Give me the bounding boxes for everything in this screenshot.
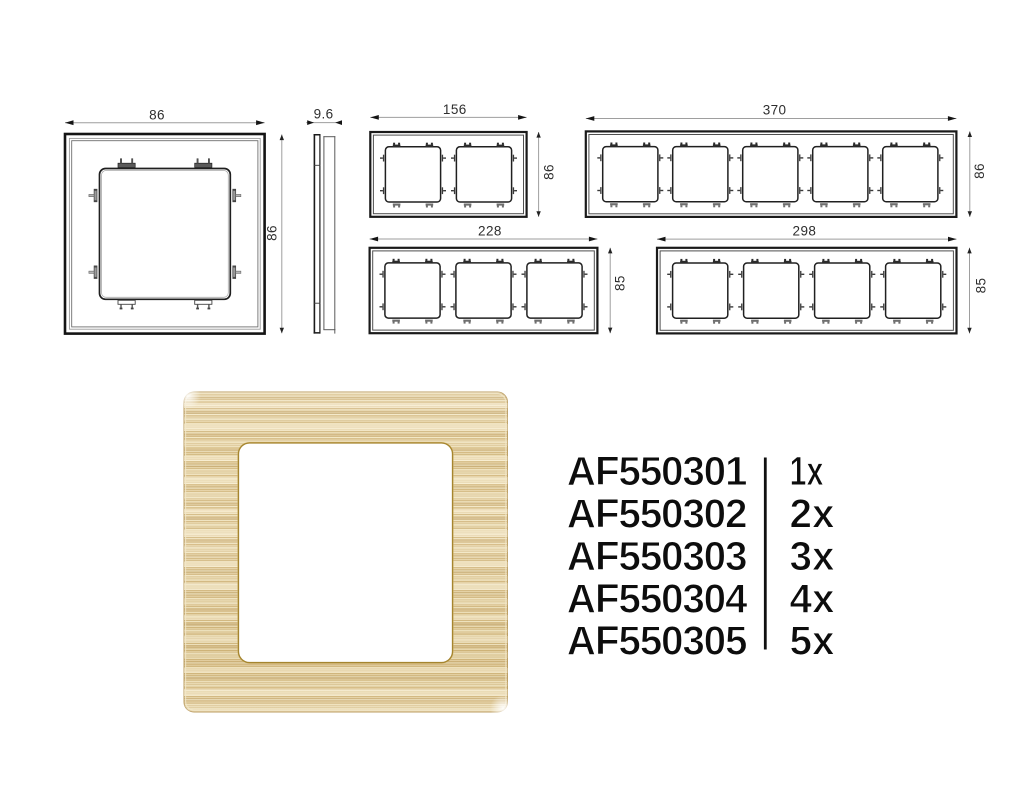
svg-text:AF550304: AF550304: [567, 575, 748, 621]
svg-text:298: 298: [793, 224, 817, 239]
svg-text:156: 156: [443, 102, 467, 117]
svg-text:86: 86: [542, 164, 557, 180]
svg-text:85: 85: [973, 278, 988, 294]
svg-text:AF550301: AF550301: [567, 448, 747, 494]
svg-text:4x: 4x: [790, 575, 836, 621]
svg-text:85: 85: [612, 275, 627, 291]
svg-text:3x: 3x: [790, 533, 836, 579]
svg-text:370: 370: [763, 103, 787, 118]
svg-text:9.6: 9.6: [314, 106, 334, 121]
svg-text:86: 86: [972, 163, 987, 179]
svg-text:228: 228: [478, 224, 502, 239]
svg-text:1x: 1x: [790, 448, 824, 494]
svg-text:86: 86: [149, 107, 165, 122]
svg-text:2x: 2x: [790, 490, 836, 536]
svg-text:AF550305: AF550305: [567, 618, 747, 664]
svg-text:5x: 5x: [790, 618, 836, 664]
svg-text:86: 86: [265, 225, 280, 241]
svg-text:AF550302: AF550302: [567, 490, 747, 536]
svg-text:AF550303: AF550303: [567, 533, 747, 579]
